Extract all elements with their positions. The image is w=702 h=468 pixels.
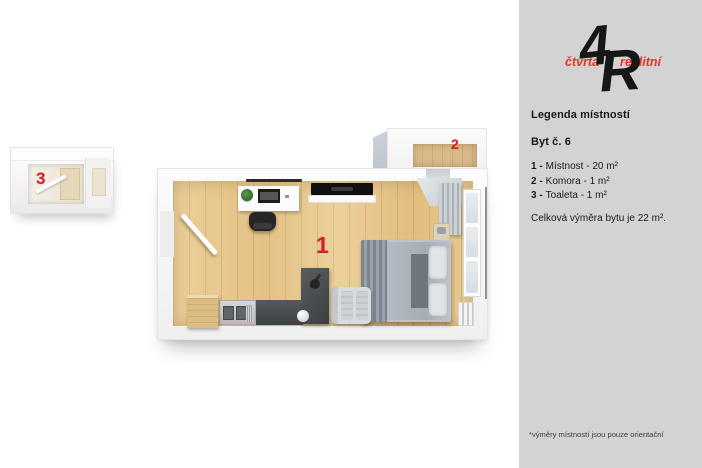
legend-item-number: 1 - bbox=[531, 161, 543, 172]
footnote: *výměry místností jsou pouze orientační bbox=[529, 430, 664, 439]
window-pane bbox=[466, 261, 478, 293]
kitchen-counter bbox=[253, 300, 303, 325]
sink-unit bbox=[219, 300, 256, 325]
wall-shelf bbox=[246, 179, 302, 182]
legend-item-number: 2 - bbox=[531, 176, 543, 187]
office-chair bbox=[249, 212, 276, 231]
legend-item-room2: 2 -Komora - 1 m² bbox=[531, 175, 618, 190]
window-pane bbox=[466, 193, 478, 223]
counter-stool bbox=[297, 310, 309, 322]
toilet-fixture bbox=[60, 168, 80, 200]
pillow bbox=[429, 246, 447, 279]
sofa-cushion bbox=[341, 291, 353, 320]
room-1-label: 1 bbox=[316, 234, 329, 257]
komora-room-render: 2 bbox=[373, 128, 487, 172]
computer-mouse bbox=[285, 195, 289, 198]
computer-monitor bbox=[258, 189, 280, 203]
plant bbox=[241, 189, 253, 201]
legend-item-text: Toaleta - 1 m² bbox=[546, 190, 607, 201]
sofa bbox=[331, 287, 371, 324]
sink-basin bbox=[223, 306, 234, 320]
legend-sidebar: čtvrtá realitní 4 R Legenda místností By… bbox=[519, 0, 702, 468]
dresser-items bbox=[437, 227, 446, 234]
counter-object bbox=[310, 279, 320, 289]
toilet-right-panel bbox=[92, 168, 106, 196]
legend-item-room3: 3 -Toaleta - 1 m² bbox=[531, 189, 618, 204]
sink-drainer bbox=[246, 305, 253, 322]
entry-doorway bbox=[160, 211, 174, 257]
toilet-room-render: 3 bbox=[10, 147, 114, 214]
agency-logo: čtvrtá realitní 4 R bbox=[563, 14, 675, 102]
legend-item-room1: 1 -Místnost - 20 m² bbox=[531, 160, 618, 175]
legend-title: Legenda místností bbox=[531, 109, 630, 121]
window-pane bbox=[466, 227, 478, 257]
total-area-text: Celková výměra bytu je 22 m². bbox=[531, 213, 666, 224]
chair-back bbox=[253, 223, 272, 229]
wall-tv bbox=[311, 183, 373, 195]
curtain-rod bbox=[485, 187, 487, 299]
floorplan-page: 3 2 bbox=[0, 0, 702, 468]
tv-shelf bbox=[308, 195, 376, 203]
radiator bbox=[458, 302, 474, 326]
legend-item-text: Místnost - 20 m² bbox=[546, 161, 618, 172]
legend-item-number: 3 - bbox=[531, 190, 543, 201]
unit-title: Byt č. 6 bbox=[531, 136, 571, 148]
room-3-label: 3 bbox=[36, 170, 45, 187]
pillow bbox=[429, 283, 447, 316]
apartment-plan: 1 bbox=[157, 168, 488, 340]
komora-floor bbox=[413, 144, 477, 167]
kitchen-cabinet bbox=[187, 295, 218, 328]
bed-runner bbox=[411, 254, 428, 308]
logo-letter-r: R bbox=[597, 37, 643, 102]
room-legend-list: 1 -Místnost - 20 m² 2 -Komora - 1 m² 3 -… bbox=[531, 160, 618, 204]
monitor-screen bbox=[260, 192, 278, 200]
room-2-label: 2 bbox=[451, 137, 459, 151]
tv-soundbar bbox=[331, 187, 353, 191]
sofa-cushion bbox=[356, 291, 368, 320]
toilet-right-face bbox=[85, 158, 111, 208]
legend-item-text: Komora - 1 m² bbox=[546, 176, 610, 187]
double-bed bbox=[361, 240, 451, 322]
window-frame bbox=[463, 189, 481, 297]
